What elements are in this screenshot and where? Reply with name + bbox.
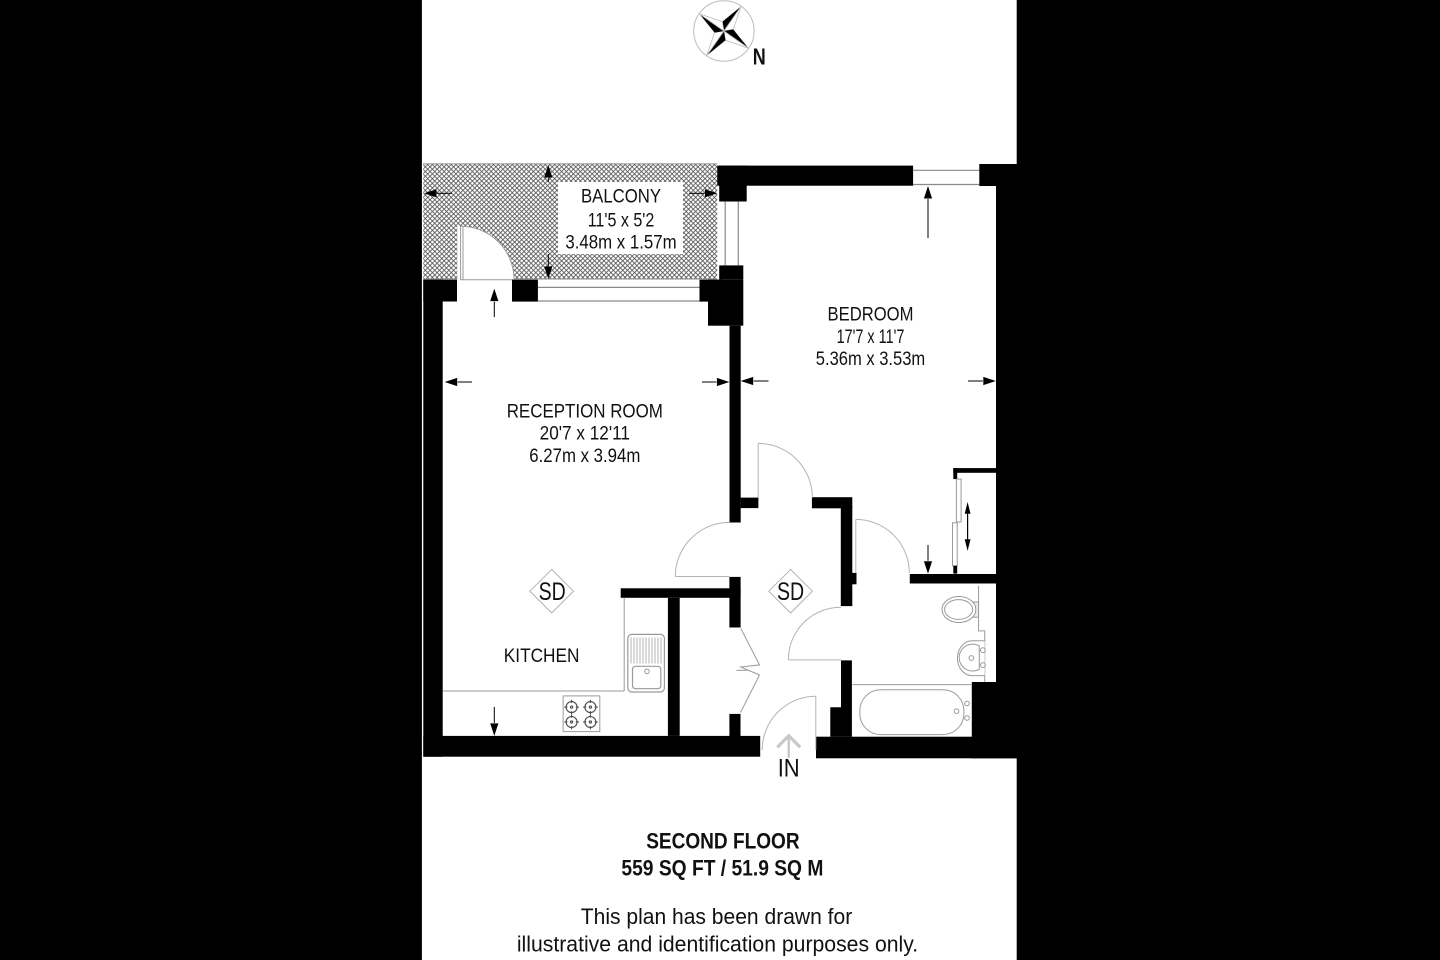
svg-text:SECOND FLOOR: SECOND FLOOR <box>646 828 799 853</box>
svg-text:BALCONY: BALCONY <box>581 185 661 207</box>
svg-text:5.36m x 3.53m: 5.36m x 3.53m <box>816 348 925 370</box>
svg-text:SD: SD <box>777 579 804 606</box>
svg-text:6.27m x 3.94m: 6.27m x 3.94m <box>529 445 640 467</box>
svg-text:17'7 x 11'7: 17'7 x 11'7 <box>837 326 905 348</box>
svg-text:RECEPTION ROOM: RECEPTION ROOM <box>507 400 663 422</box>
svg-text:20'7 x 12'11: 20'7 x 12'11 <box>540 423 630 445</box>
svg-text:N: N <box>753 44 766 70</box>
svg-text:This plan has been drawn for: This plan has been drawn for <box>581 904 853 929</box>
svg-text:11'5 x 5'2: 11'5 x 5'2 <box>588 210 655 232</box>
svg-text:KITCHEN: KITCHEN <box>504 645 580 667</box>
svg-text:SD: SD <box>539 579 566 606</box>
svg-text:illustrative and identificatio: illustrative and identification purposes… <box>517 931 918 956</box>
svg-text:3.48m x 1.57m: 3.48m x 1.57m <box>565 232 676 254</box>
svg-text:IN: IN <box>778 756 800 783</box>
svg-text:559 SQ FT / 51.9 SQ M: 559 SQ FT / 51.9 SQ M <box>621 856 823 881</box>
svg-text:BEDROOM: BEDROOM <box>828 304 914 326</box>
